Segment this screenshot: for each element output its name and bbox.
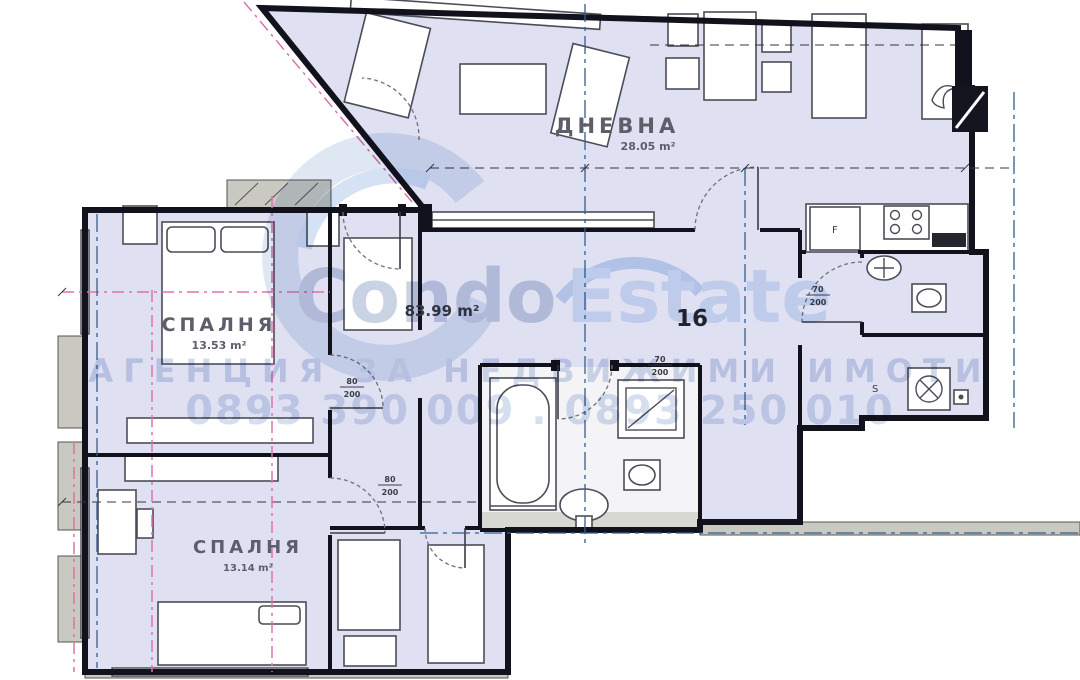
room-label-bedroom2: СПАЛНЯ (193, 537, 303, 558)
stairwell-corner (952, 86, 988, 132)
dresser (125, 455, 278, 481)
stove-symbol (884, 206, 929, 239)
kitchen-sink-counter (932, 233, 966, 247)
watermark-brand-part1: Condo (295, 254, 557, 340)
wardrobe (428, 545, 484, 663)
wardrobe (338, 540, 400, 630)
shelf (137, 509, 153, 538)
watermark-tagline: АГЕНЦИЯ ЗА НЕДВИЖИМИ ИМОТИ (88, 352, 991, 390)
room-area-bedroom1: 13.53 m² (192, 339, 247, 352)
door-dim: 80 (384, 475, 396, 484)
floor-plan-drawing: F S (0, 0, 1080, 680)
room-area-living: 28.05 m² (621, 140, 676, 153)
pillow (221, 227, 268, 252)
pillow (167, 227, 215, 252)
fridge-label: F (832, 225, 838, 236)
kitchen-symbols: F (806, 204, 968, 252)
watermark-phone: 0893 390 009 . 0893 250 010 (185, 388, 894, 434)
door-dim: 200 (382, 488, 399, 497)
wardrobe (344, 636, 396, 666)
sofa-bench (432, 212, 654, 228)
floor-plan-page: F S (0, 0, 1080, 680)
room-area-bedroom2: 13.14 m² (223, 563, 273, 574)
pillow (259, 606, 300, 624)
room-label-bedroom1: СПАЛНЯ (162, 314, 277, 336)
watermark-brand-part2: Estate (566, 254, 831, 340)
desk (98, 490, 136, 554)
room-label-living: ДНЕВНА (555, 114, 679, 138)
